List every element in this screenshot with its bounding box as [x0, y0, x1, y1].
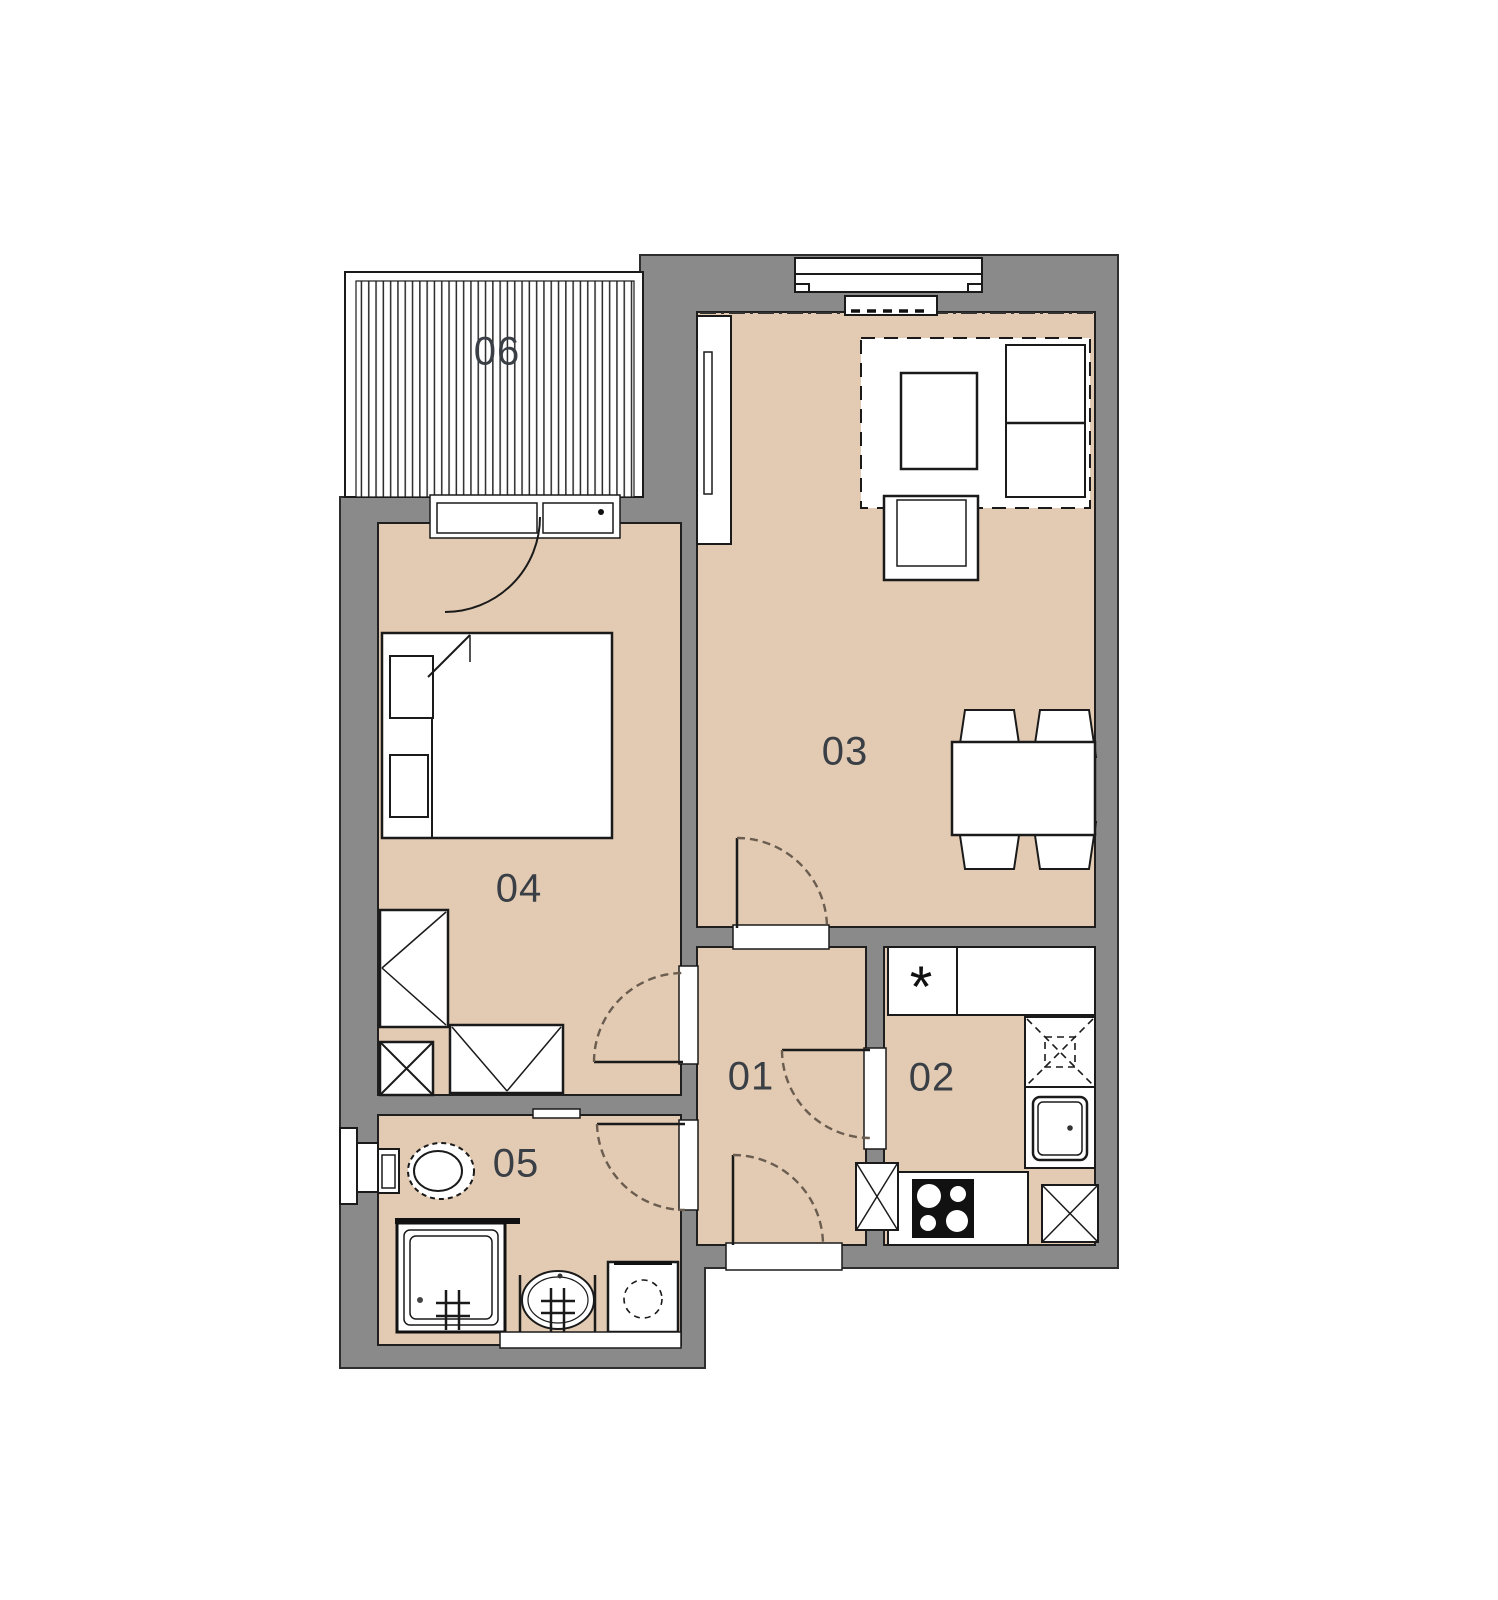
- toilet-symbol: [378, 1143, 474, 1199]
- wardrobe-low: [450, 1025, 563, 1093]
- floor-plan-drawing: [0, 0, 1498, 1600]
- shower-cabin: [395, 1221, 520, 1332]
- pillow: [390, 755, 428, 817]
- dining-table: [952, 742, 1095, 835]
- balcony-decking-hatch: [356, 281, 634, 497]
- wall-niche: [533, 1109, 580, 1118]
- floor-plan-canvas: 01 02 03 04 05 06 *: [0, 0, 1498, 1600]
- room-label-05: 05: [493, 1142, 540, 1187]
- armchair: [884, 496, 978, 580]
- coffee-table: [901, 373, 977, 469]
- room-label-03: 03: [822, 730, 869, 775]
- hallway-floor: [697, 947, 866, 1245]
- double-bed: [382, 633, 612, 838]
- room-label-02: 02: [909, 1056, 956, 1101]
- kitchen-counter-bottom: [888, 1172, 1028, 1245]
- corner-shaft: [380, 1042, 433, 1095]
- pillow: [390, 656, 433, 718]
- washing-machine-icon: [608, 1262, 678, 1332]
- tv-sideboard: [697, 316, 731, 544]
- room-label-06: 06: [474, 330, 521, 375]
- bathroom-ledge: [500, 1332, 681, 1348]
- wardrobe-tall: [380, 910, 448, 1027]
- dishwasher-asterisk-icon: *: [910, 954, 933, 1021]
- shaft-hallway: [856, 1163, 898, 1230]
- kitchen-sink: [1025, 1087, 1095, 1168]
- kitchen-hood-icon: [1025, 1017, 1095, 1087]
- room-label-04: 04: [496, 867, 543, 912]
- stove-icon: [912, 1179, 974, 1238]
- room-label-01: 01: [728, 1055, 775, 1100]
- balcony: [345, 272, 643, 497]
- shaft-kitchen-corner: [1042, 1185, 1098, 1242]
- radiator: [845, 296, 937, 315]
